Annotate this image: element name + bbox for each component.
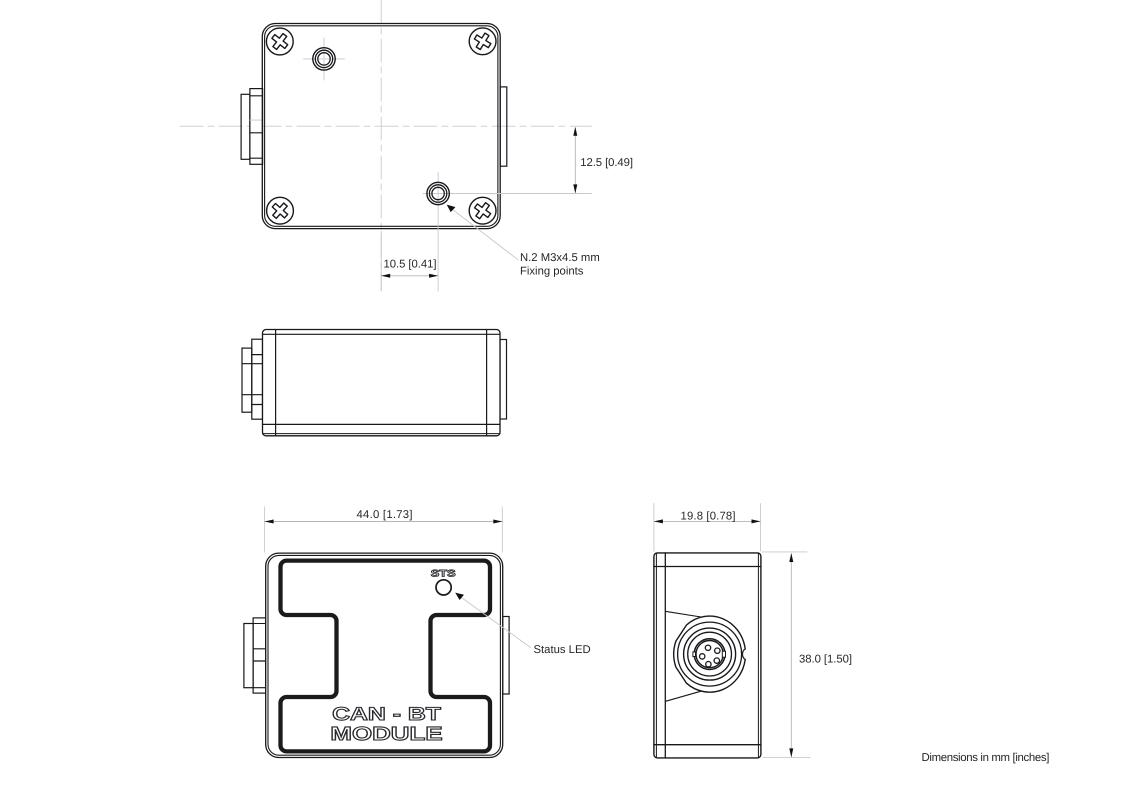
svg-text:CAN - BT: CAN - BT xyxy=(332,703,442,724)
svg-text:MODULE: MODULE xyxy=(330,724,442,745)
svg-text:19.8 [0.78]: 19.8 [0.78] xyxy=(681,510,736,522)
svg-text:12.5 [0.49]: 12.5 [0.49] xyxy=(580,157,633,169)
svg-text:N.2 M3x4.5 mm: N.2 M3x4.5 mm xyxy=(520,252,600,264)
svg-text:STS: STS xyxy=(431,568,457,579)
svg-text:10.5 [0.41]: 10.5 [0.41] xyxy=(384,259,437,271)
svg-text:Dimensions in mm [inches]: Dimensions in mm [inches] xyxy=(922,752,1050,764)
svg-text:Status LED: Status LED xyxy=(534,644,591,656)
svg-text:Fixing points: Fixing points xyxy=(520,266,584,278)
svg-text:38.0 [1.50]: 38.0 [1.50] xyxy=(799,653,852,665)
svg-text:44.0 [1.73]: 44.0 [1.73] xyxy=(357,509,413,521)
